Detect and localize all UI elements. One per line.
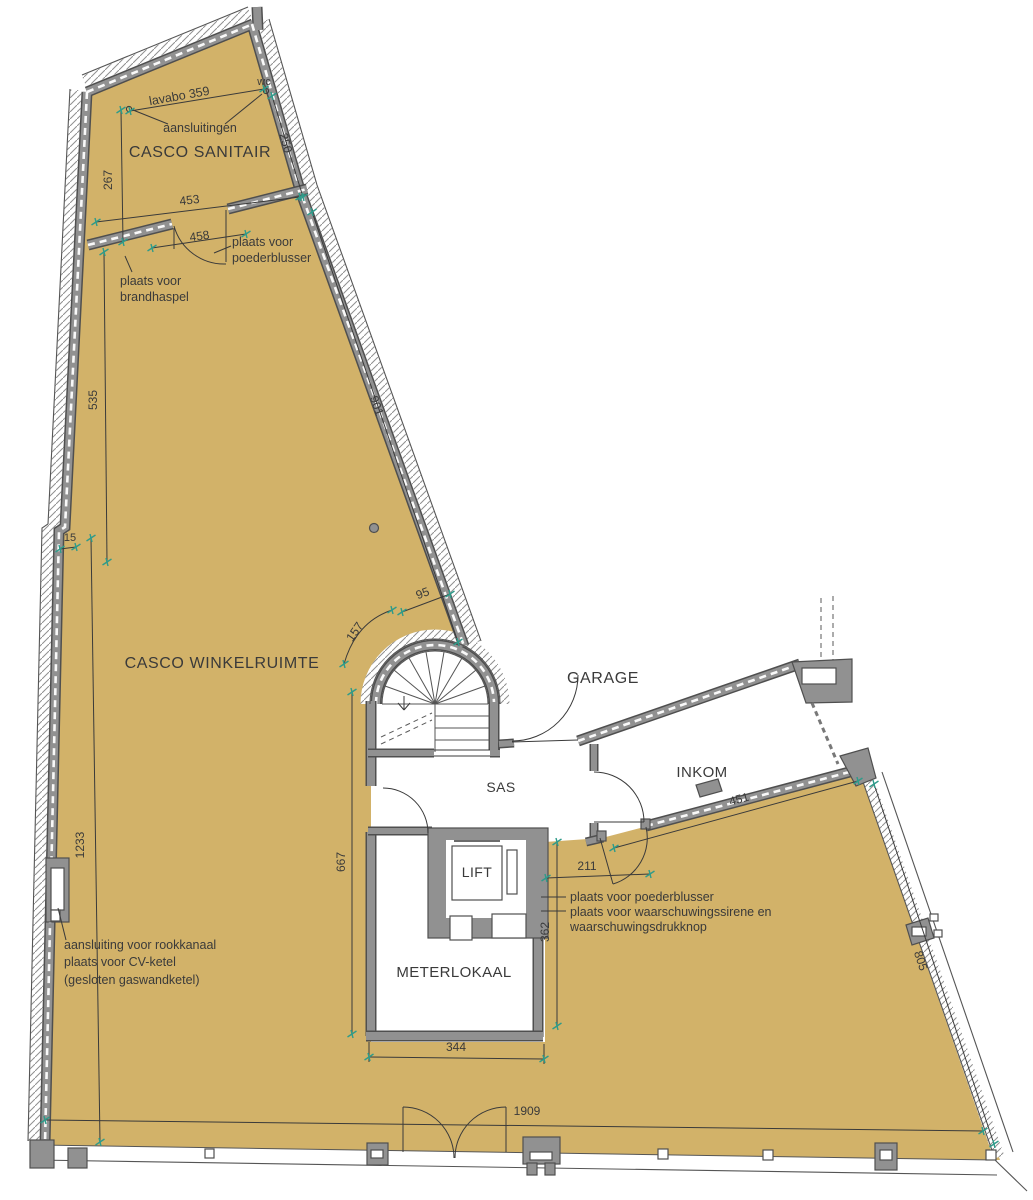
dim-458: 458 xyxy=(189,228,211,245)
annotation-poederblusser-top-1: plaats voor xyxy=(232,235,293,249)
dim-267: 267 xyxy=(101,170,115,190)
dim-15: 15 xyxy=(64,532,76,544)
dim-211: 211 xyxy=(577,859,596,873)
dim-1233: 1233 xyxy=(73,831,87,858)
annotation-cv-1: aansluiting voor rookkanaal xyxy=(64,938,216,952)
inkom-wall-pillar xyxy=(696,779,722,797)
lift-shaft xyxy=(428,828,548,940)
room-label-lift: LIFT xyxy=(462,864,492,880)
sas-inkom-door xyxy=(594,772,644,822)
annotation-brandhaspel-1: plaats voor xyxy=(120,274,181,288)
room-label-garage: GARAGE xyxy=(567,670,639,687)
garage-right-wall xyxy=(792,596,876,786)
dim-667: 667 xyxy=(334,852,348,872)
floor-plan-page: CASCO SANITAIR CASCO WINKELRUIMTE GARAGE… xyxy=(0,0,1033,1200)
cv-ketel-niche xyxy=(46,858,69,922)
annotation-sirene-2: waarschuwingsdrukknop xyxy=(569,920,707,934)
wall-niche-right xyxy=(492,914,526,938)
room-label-sas: SAS xyxy=(486,779,515,795)
dim-535: 535 xyxy=(86,390,100,410)
dim-344: 344 xyxy=(446,1040,466,1054)
garage-door-opening xyxy=(812,703,838,764)
annotation-sirene-1: plaats voor waarschuwingssirene en xyxy=(570,905,772,919)
dim-453: 453 xyxy=(179,192,201,208)
stair-climb-line xyxy=(381,696,432,744)
lift-guide-rail xyxy=(507,850,517,894)
structural-column xyxy=(370,524,379,533)
annotation-aansluitingen: aansluitingen xyxy=(163,121,237,135)
wall-niche-left xyxy=(450,916,472,940)
dim-362: 362 xyxy=(538,922,552,942)
room-label-meterlokaal: METERLOKAAL xyxy=(396,964,511,981)
room-label-casco-sanitair: CASCO SANITAIR xyxy=(129,144,271,161)
annotation-poederblusser-bottom: plaats voor poederblusser xyxy=(570,890,714,904)
annotation-brandhaspel-2: brandhaspel xyxy=(120,290,189,304)
room-label-inkom: INKOM xyxy=(676,764,727,781)
annotation-cv-2: plaats voor CV-ketel xyxy=(64,955,176,969)
room-label-casco-winkelruimte: CASCO WINKELRUIMTE xyxy=(125,655,320,672)
annotation-cv-3: (gesloten gaswandketel) xyxy=(64,973,200,987)
stair-direction-arrow-icon xyxy=(398,696,410,710)
dim-1909: 1909 xyxy=(514,1104,541,1118)
room-label-wc: wc xyxy=(256,76,271,88)
annotation-poederblusser-top-2: poederblusser xyxy=(232,251,311,265)
stair-opening-lines xyxy=(434,750,490,756)
floor-plan-drawing: CASCO SANITAIR CASCO WINKELRUIMTE GARAGE… xyxy=(0,0,1033,1200)
sas-west-door xyxy=(383,788,428,833)
